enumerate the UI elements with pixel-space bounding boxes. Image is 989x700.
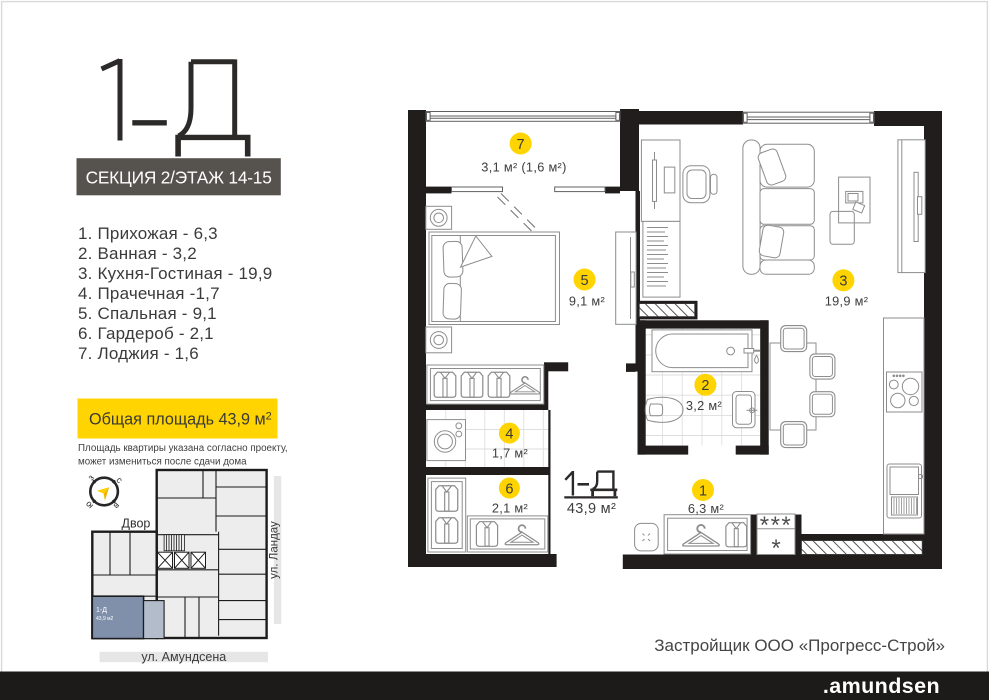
svg-text:СЕКЦИЯ 2/ЭТАЖ 14-15: СЕКЦИЯ 2/ЭТАЖ 14-15	[86, 168, 272, 188]
svg-text:6: 6	[505, 481, 513, 497]
svg-text:1. Прихожая - 6,3: 1. Прихожая - 6,3	[78, 224, 218, 243]
svg-text:43,9 м²: 43,9 м²	[567, 501, 616, 517]
svg-text:4. Прачечная -1,7: 4. Прачечная -1,7	[78, 284, 220, 303]
svg-text:3,1 м² (1,6 м²): 3,1 м² (1,6 м²)	[481, 159, 566, 174]
svg-text:Площадь квартиры указана согла: Площадь квартиры указана согласно проект…	[78, 443, 288, 454]
svg-text:3: 3	[839, 274, 847, 290]
svg-text:9,1 м²: 9,1 м²	[569, 293, 606, 308]
svg-text:5: 5	[580, 273, 588, 289]
svg-text:19,9 м²: 19,9 м²	[825, 293, 869, 308]
svg-text:.amundsen: .amundsen	[823, 674, 940, 698]
svg-text:7. Лоджия - 1,6: 7. Лоджия - 1,6	[78, 344, 199, 363]
svg-text:Застройщик ООО «Прогресс-Строй: Застройщик ООО «Прогресс-Строй»	[654, 636, 945, 655]
svg-text:5. Спальная - 9,1: 5. Спальная - 9,1	[78, 304, 217, 323]
svg-text:2. Ванная - 3,2: 2. Ванная - 3,2	[78, 244, 197, 263]
svg-text:ул. Амундсена: ул. Амундсена	[141, 650, 226, 664]
svg-text:43,9 м2: 43,9 м2	[96, 616, 114, 622]
svg-text:1-Д: 1-Д	[96, 607, 107, 614]
svg-text:Двор: Двор	[122, 517, 151, 531]
svg-text:2,1 м²: 2,1 м²	[492, 500, 529, 515]
svg-text:3. Кухня-Гостиная - 19,9: 3. Кухня-Гостиная - 19,9	[78, 264, 272, 283]
svg-text:6. Гардероб - 2,1: 6. Гардероб - 2,1	[78, 324, 214, 343]
svg-text:2: 2	[701, 378, 709, 394]
svg-text:з: з	[86, 473, 96, 483]
svg-text:ул. Ландау: ул. Ландау	[269, 521, 281, 579]
svg-text:может измениться после сдачи: может измениться после сдачи дома	[78, 457, 247, 468]
svg-text:1: 1	[699, 483, 707, 499]
svg-text:*: *	[771, 535, 780, 562]
svg-text:4: 4	[505, 426, 513, 442]
svg-text:6,3 м²: 6,3 м²	[688, 501, 725, 516]
svg-text:Общая площадь 43,9 м2: Общая площадь 43,9 м2	[89, 411, 272, 429]
svg-text:7: 7	[517, 137, 525, 153]
svg-text:3,2 м²: 3,2 м²	[686, 398, 723, 413]
svg-text:1,7 м²: 1,7 м²	[492, 445, 529, 460]
